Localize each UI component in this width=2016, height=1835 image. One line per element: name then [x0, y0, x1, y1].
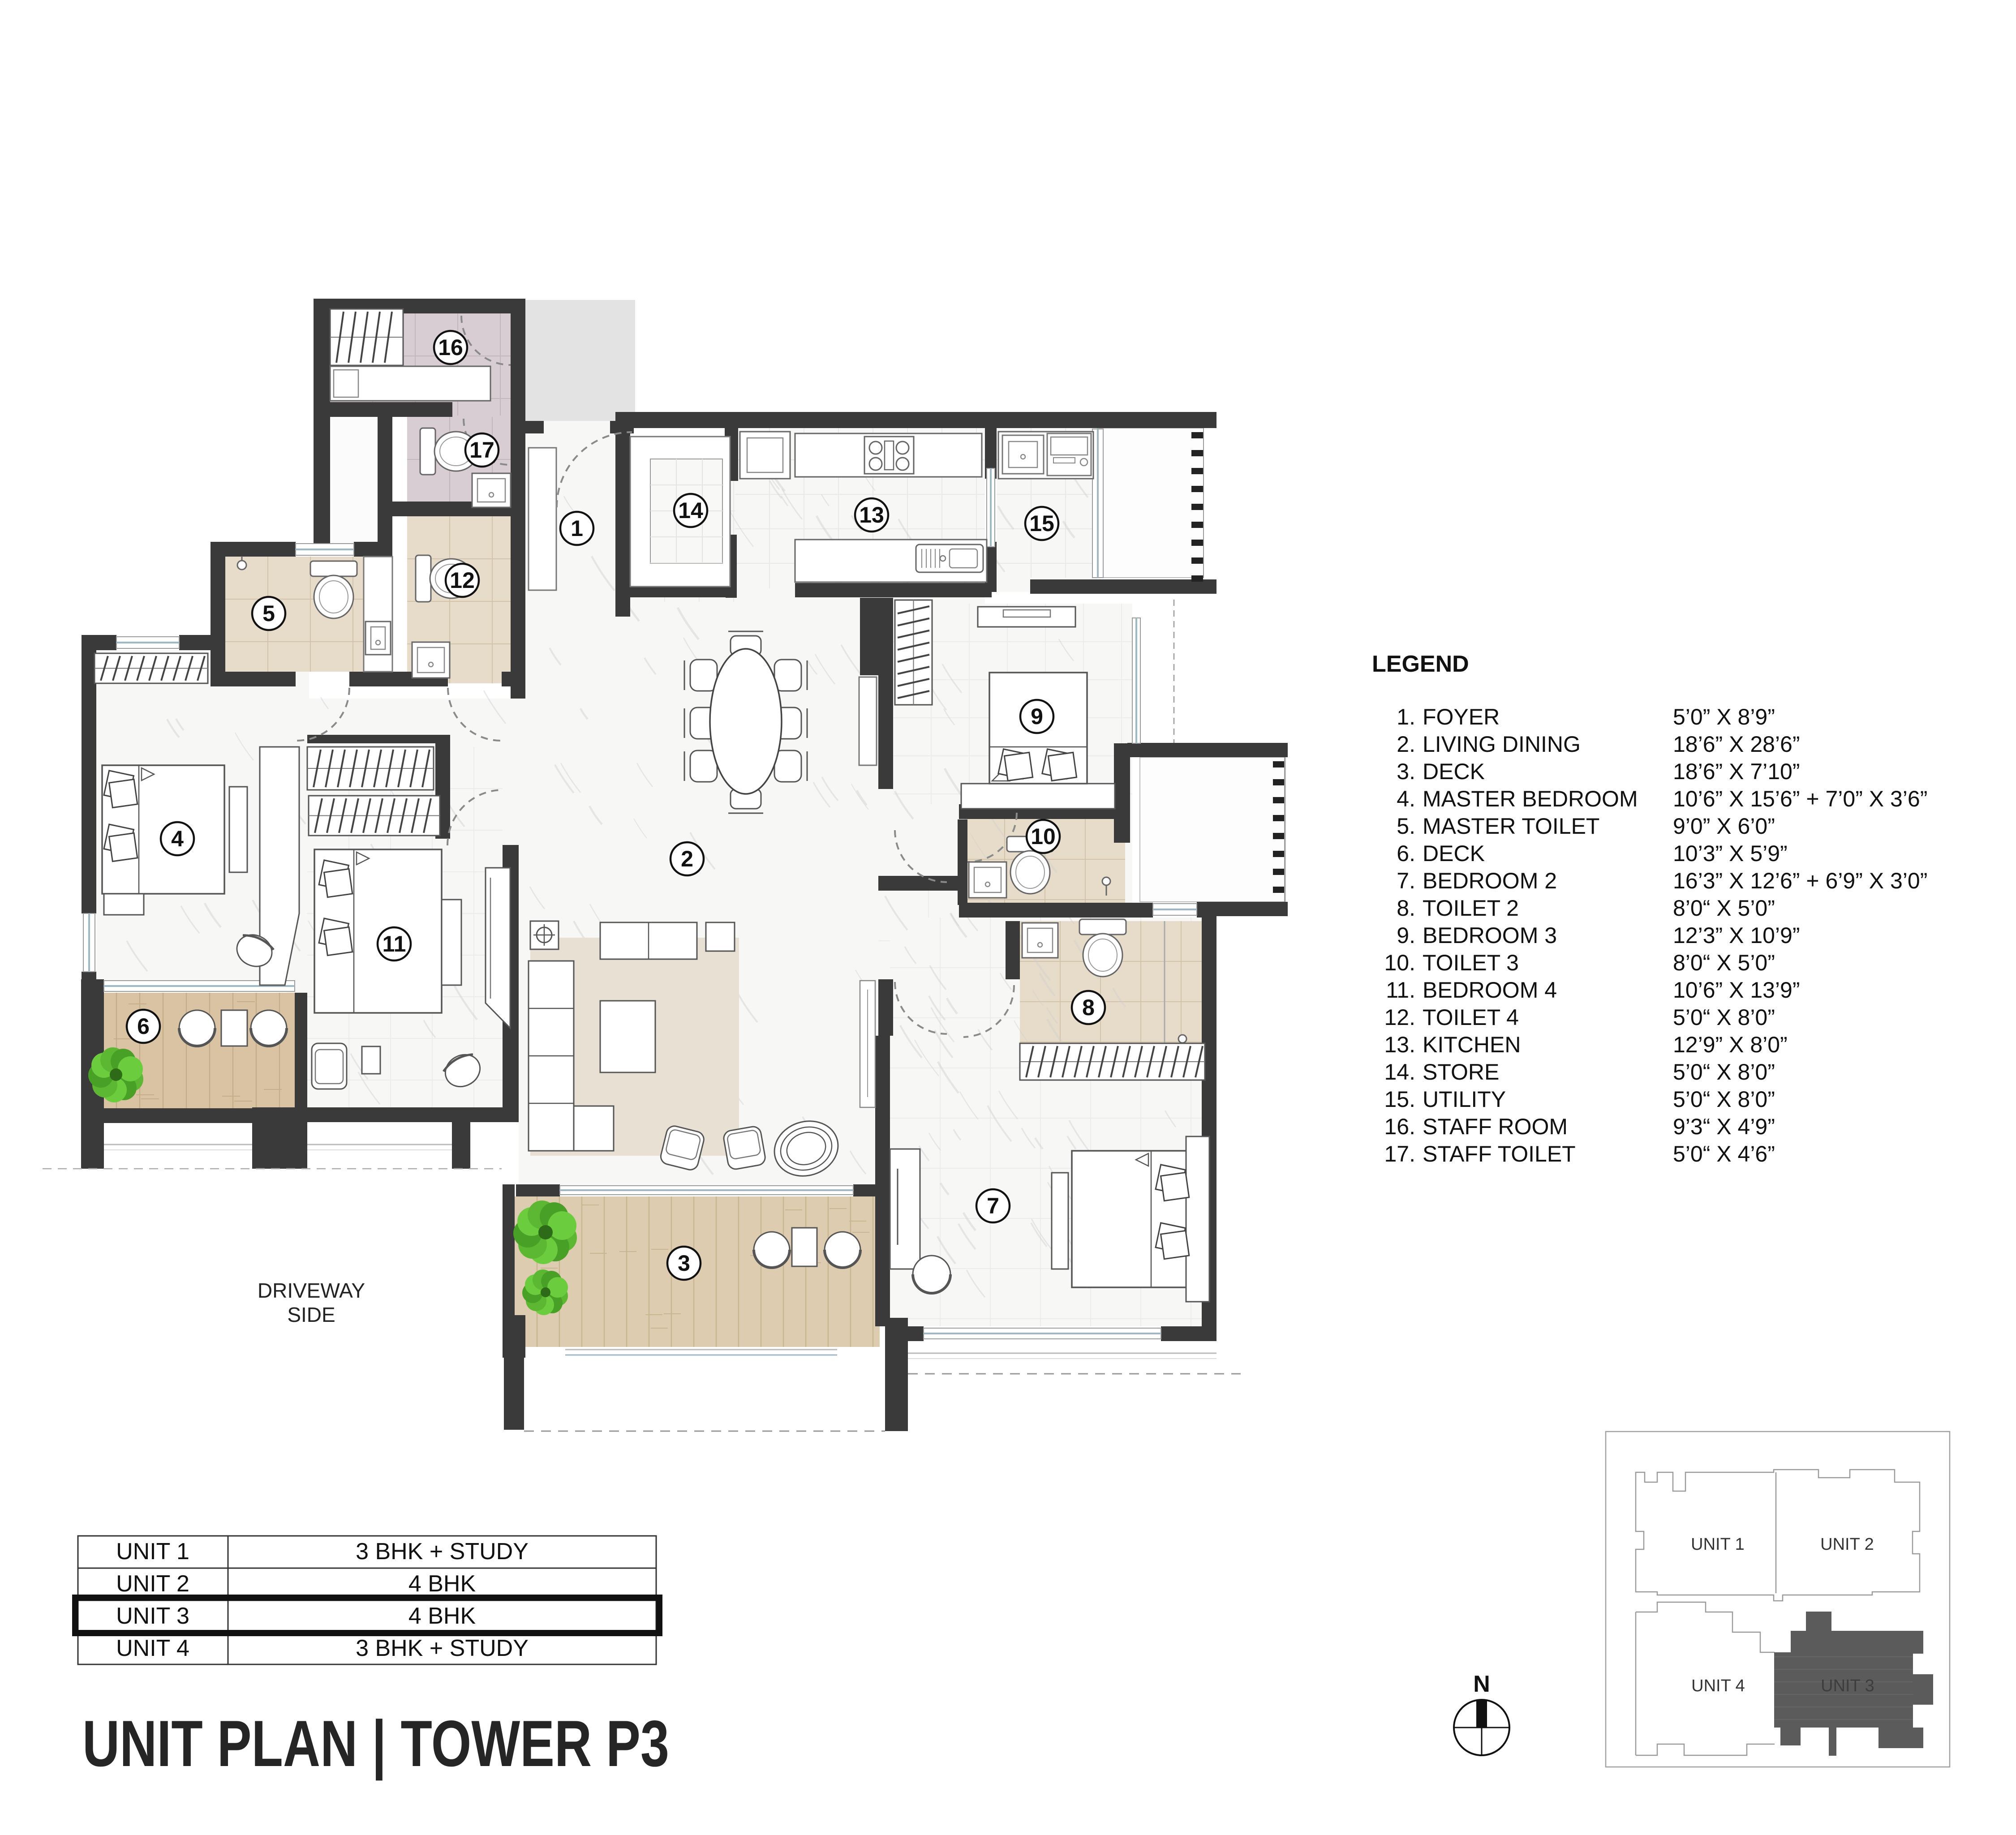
svg-text:10’6” X 15’6” + 7’0” X 3’6”: 10’6” X 15’6” + 7’0” X 3’6”	[1673, 786, 1927, 811]
svg-text:UNIT 4: UNIT 4	[116, 1635, 189, 1661]
svg-text:12’9” X 8’0”: 12’9” X 8’0”	[1673, 1032, 1788, 1057]
svg-text:3 BHK + STUDY: 3 BHK + STUDY	[356, 1539, 529, 1565]
svg-text:11.: 11.	[1386, 978, 1415, 1003]
svg-text:LIVING DINING: LIVING DINING	[1423, 732, 1581, 757]
svg-text:UNIT 3: UNIT 3	[1821, 1676, 1874, 1695]
svg-text:BEDROOM 3: BEDROOM 3	[1423, 923, 1557, 948]
svg-text:15.: 15.	[1384, 1087, 1415, 1112]
svg-text:18’6” X 28’6”: 18’6” X 28’6”	[1673, 732, 1800, 757]
svg-text:4: 4	[171, 826, 184, 851]
svg-text:10.: 10.	[1384, 950, 1415, 975]
svg-text:8’0“ X 5’0”: 8’0“ X 5’0”	[1673, 896, 1775, 921]
svg-text:6.: 6.	[1397, 841, 1415, 866]
svg-text:KITCHEN: KITCHEN	[1423, 1032, 1521, 1057]
svg-text:9’3“ X 4’9”: 9’3“ X 4’9”	[1673, 1114, 1775, 1139]
svg-text:17.: 17.	[1384, 1141, 1415, 1166]
svg-text:10’6” X 13’9”: 10’6” X 13’9”	[1673, 978, 1800, 1003]
svg-text:8’0“ X 5’0”: 8’0“ X 5’0”	[1673, 950, 1775, 975]
svg-text:10’3” X 5’9”: 10’3” X 5’9”	[1673, 841, 1788, 866]
svg-text:7.: 7.	[1397, 868, 1415, 893]
svg-text:TOILET 2: TOILET 2	[1423, 896, 1519, 921]
svg-text:5.: 5.	[1397, 814, 1415, 839]
svg-text:3 BHK + STUDY: 3 BHK + STUDY	[356, 1635, 529, 1661]
svg-text:UNIT 1: UNIT 1	[1691, 1535, 1745, 1554]
svg-text:FOYER: FOYER	[1423, 704, 1500, 729]
svg-text:6: 6	[137, 1014, 150, 1039]
svg-text:UNIT 2: UNIT 2	[116, 1571, 189, 1597]
svg-text:12’3” X 10’9”: 12’3” X 10’9”	[1673, 923, 1800, 948]
svg-text:12: 12	[450, 568, 475, 593]
svg-text:N: N	[1473, 1671, 1490, 1697]
svg-text:UTILITY: UTILITY	[1423, 1087, 1506, 1112]
svg-text:12.: 12.	[1384, 1005, 1415, 1030]
svg-text:16.: 16.	[1384, 1114, 1415, 1139]
svg-text:16: 16	[438, 335, 463, 360]
svg-text:5’0” X 8’9”: 5’0” X 8’9”	[1673, 704, 1775, 729]
svg-text:MASTER TOILET: MASTER TOILET	[1423, 814, 1599, 839]
svg-text:9: 9	[1031, 704, 1043, 729]
svg-text:5’0“ X 8’0”: 5’0“ X 8’0”	[1673, 1005, 1775, 1030]
svg-text:TOILET 4: TOILET 4	[1423, 1005, 1519, 1030]
svg-text:11: 11	[383, 931, 406, 956]
svg-text:16’3” X 12’6” + 6’9” X 3’0”: 16’3” X 12’6” + 6’9” X 3’0”	[1673, 868, 1927, 893]
svg-text:4 BHK: 4 BHK	[408, 1603, 476, 1629]
svg-text:4 BHK: 4 BHK	[408, 1571, 476, 1597]
svg-text:SIDE: SIDE	[287, 1303, 335, 1326]
svg-text:14.: 14.	[1384, 1059, 1415, 1085]
svg-text:4.: 4.	[1397, 786, 1415, 811]
svg-text:5’0“ X 8’0”: 5’0“ X 8’0”	[1673, 1087, 1775, 1112]
svg-text:8: 8	[1082, 995, 1095, 1020]
svg-text:13: 13	[859, 502, 884, 527]
svg-text:10: 10	[1031, 824, 1056, 849]
svg-text:DECK: DECK	[1423, 841, 1485, 866]
svg-text:BEDROOM 4: BEDROOM 4	[1423, 978, 1557, 1003]
svg-text:17: 17	[469, 437, 494, 463]
svg-text:UNIT 1: UNIT 1	[116, 1539, 189, 1565]
svg-text:LEGEND: LEGEND	[1372, 651, 1469, 677]
svg-text:2.: 2.	[1397, 732, 1415, 757]
svg-text:5’0“ X 8’0”: 5’0“ X 8’0”	[1673, 1059, 1775, 1085]
svg-text:5’0“ X 4’6”: 5’0“ X 4’6”	[1673, 1141, 1775, 1166]
svg-text:15: 15	[1029, 511, 1054, 536]
svg-text:1.: 1.	[1397, 704, 1415, 729]
svg-text:STAFF TOILET: STAFF TOILET	[1423, 1141, 1576, 1166]
svg-text:9’0” X 6’0”: 9’0” X 6’0”	[1673, 814, 1775, 839]
svg-text:BEDROOM 2: BEDROOM 2	[1423, 868, 1557, 893]
svg-text:9.: 9.	[1397, 923, 1415, 948]
svg-text:UNIT 3: UNIT 3	[116, 1603, 189, 1629]
svg-text:TOILET 3: TOILET 3	[1423, 950, 1519, 975]
svg-text:STAFF ROOM: STAFF ROOM	[1423, 1114, 1568, 1139]
svg-text:14: 14	[678, 498, 703, 523]
svg-text:2: 2	[681, 846, 693, 871]
svg-text:DRIVEWAY: DRIVEWAY	[258, 1279, 365, 1302]
svg-text:3: 3	[678, 1251, 690, 1276]
svg-text:STORE: STORE	[1423, 1059, 1499, 1085]
svg-text:18’6” X 7’10”: 18’6” X 7’10”	[1673, 759, 1800, 784]
svg-text:MASTER BEDROOM: MASTER BEDROOM	[1423, 786, 1638, 811]
svg-text:7: 7	[987, 1193, 999, 1218]
svg-text:UNIT 4: UNIT 4	[1691, 1676, 1745, 1695]
svg-text:DECK: DECK	[1423, 759, 1485, 784]
svg-text:3.: 3.	[1397, 759, 1415, 784]
svg-text:UNIT PLAN | TOWER P3: UNIT PLAN | TOWER P3	[82, 1707, 669, 1781]
svg-text:1: 1	[571, 516, 583, 541]
svg-text:13.: 13.	[1384, 1032, 1415, 1057]
svg-text:UNIT 2: UNIT 2	[1820, 1535, 1874, 1554]
svg-text:5: 5	[262, 601, 275, 626]
svg-text:8.: 8.	[1397, 896, 1415, 921]
